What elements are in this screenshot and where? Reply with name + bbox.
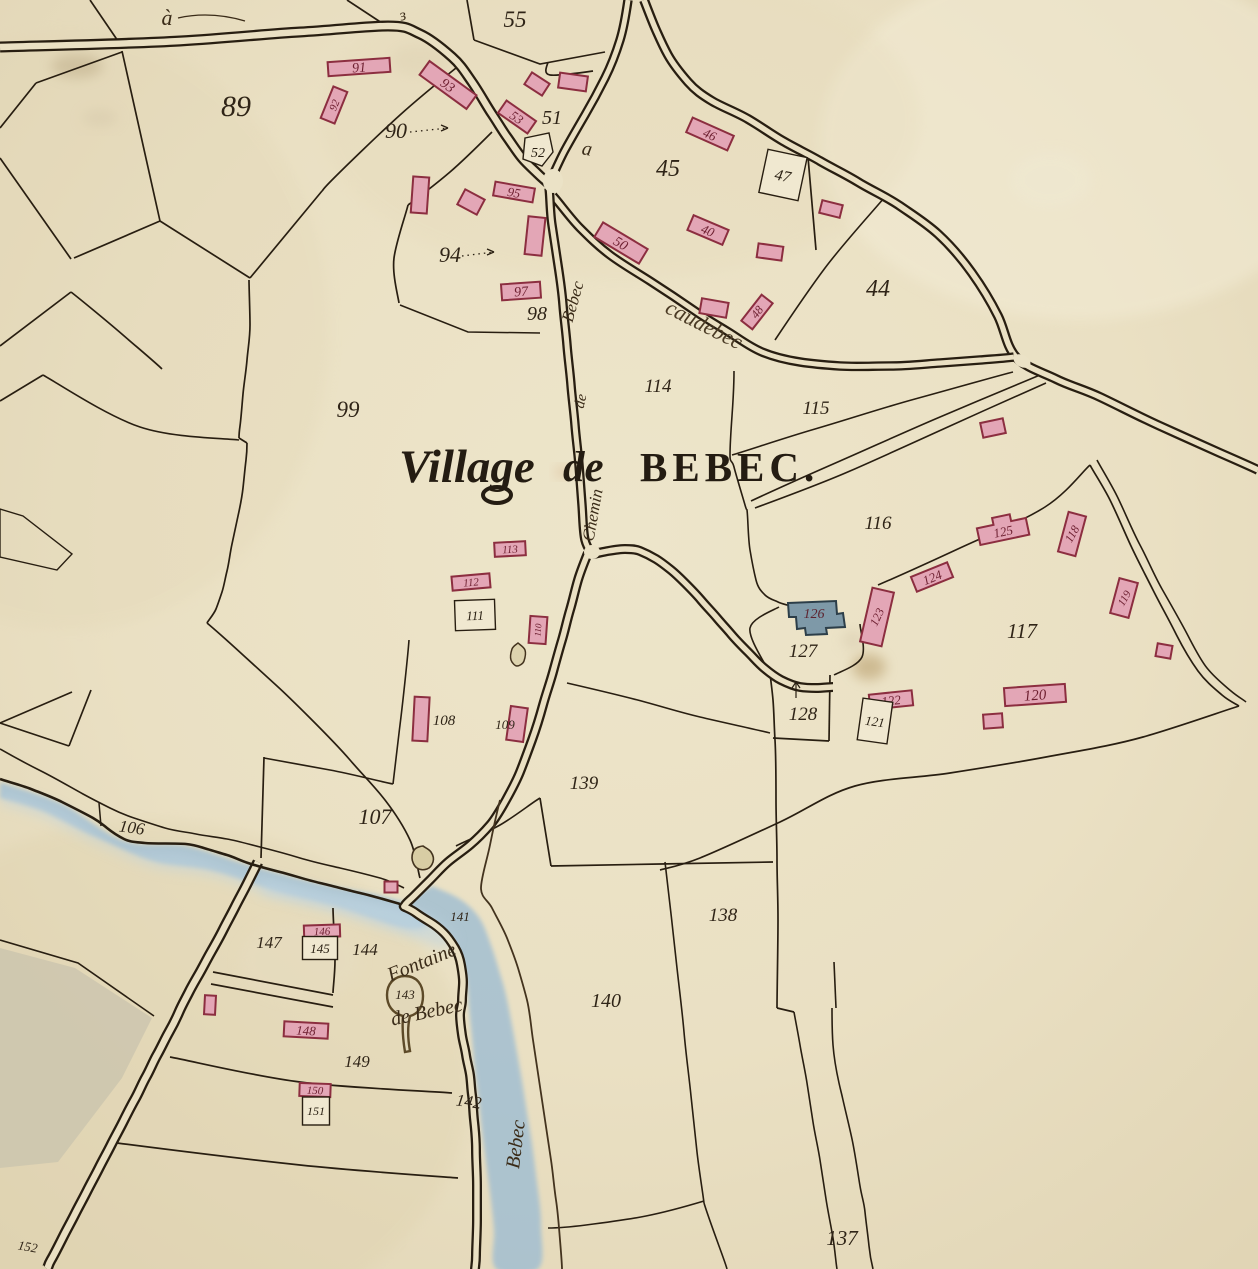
svg-text:Village: Village [399,441,535,493]
svg-text:149: 149 [344,1052,370,1071]
svg-text:143: 143 [395,987,415,1002]
svg-text:150: 150 [307,1085,324,1098]
svg-text:128: 128 [789,704,818,725]
svg-text:90: 90 [385,118,407,143]
svg-text:137: 137 [826,1226,859,1250]
svg-text:120: 120 [1023,687,1047,705]
svg-text:109: 109 [495,717,515,732]
svg-text:115: 115 [802,398,829,419]
svg-text:117: 117 [1007,619,1038,643]
svg-text:116: 116 [864,513,892,534]
svg-text:113: 113 [502,544,519,557]
svg-text:144: 144 [352,940,378,959]
svg-text:94: 94 [439,242,461,267]
svg-text:108: 108 [433,713,456,729]
svg-text:99: 99 [337,397,361,422]
svg-text:112: 112 [463,576,480,589]
svg-text:BEBEC.: BEBEC. [640,444,819,490]
svg-text:44: 44 [866,276,890,302]
svg-text:91: 91 [352,61,367,77]
svg-text:147: 147 [256,933,283,952]
svg-text:52: 52 [531,146,545,161]
svg-text:de: de [563,444,604,491]
svg-text:98: 98 [527,303,547,325]
svg-text:141: 141 [450,909,470,924]
svg-text:51: 51 [542,107,562,129]
svg-text:45: 45 [656,156,680,182]
svg-text:à: à [162,5,173,30]
svg-text:111: 111 [466,608,484,624]
svg-text:106: 106 [118,816,146,838]
svg-text:121: 121 [864,713,885,731]
svg-text:97: 97 [514,284,530,300]
svg-text:140: 140 [591,990,621,1012]
svg-text:151: 151 [307,1104,325,1118]
svg-text:148: 148 [296,1022,317,1038]
svg-text:110: 110 [533,623,544,637]
svg-text:126: 126 [804,607,825,622]
svg-text:145: 145 [310,941,330,956]
svg-text:127: 127 [789,641,819,662]
svg-text:138: 138 [709,905,738,926]
svg-text:142: 142 [455,1090,483,1112]
svg-text:55: 55 [504,7,527,32]
svg-text:107: 107 [359,804,393,829]
svg-text:139: 139 [570,773,599,794]
svg-text:89: 89 [221,90,251,123]
svg-text:114: 114 [644,376,672,397]
